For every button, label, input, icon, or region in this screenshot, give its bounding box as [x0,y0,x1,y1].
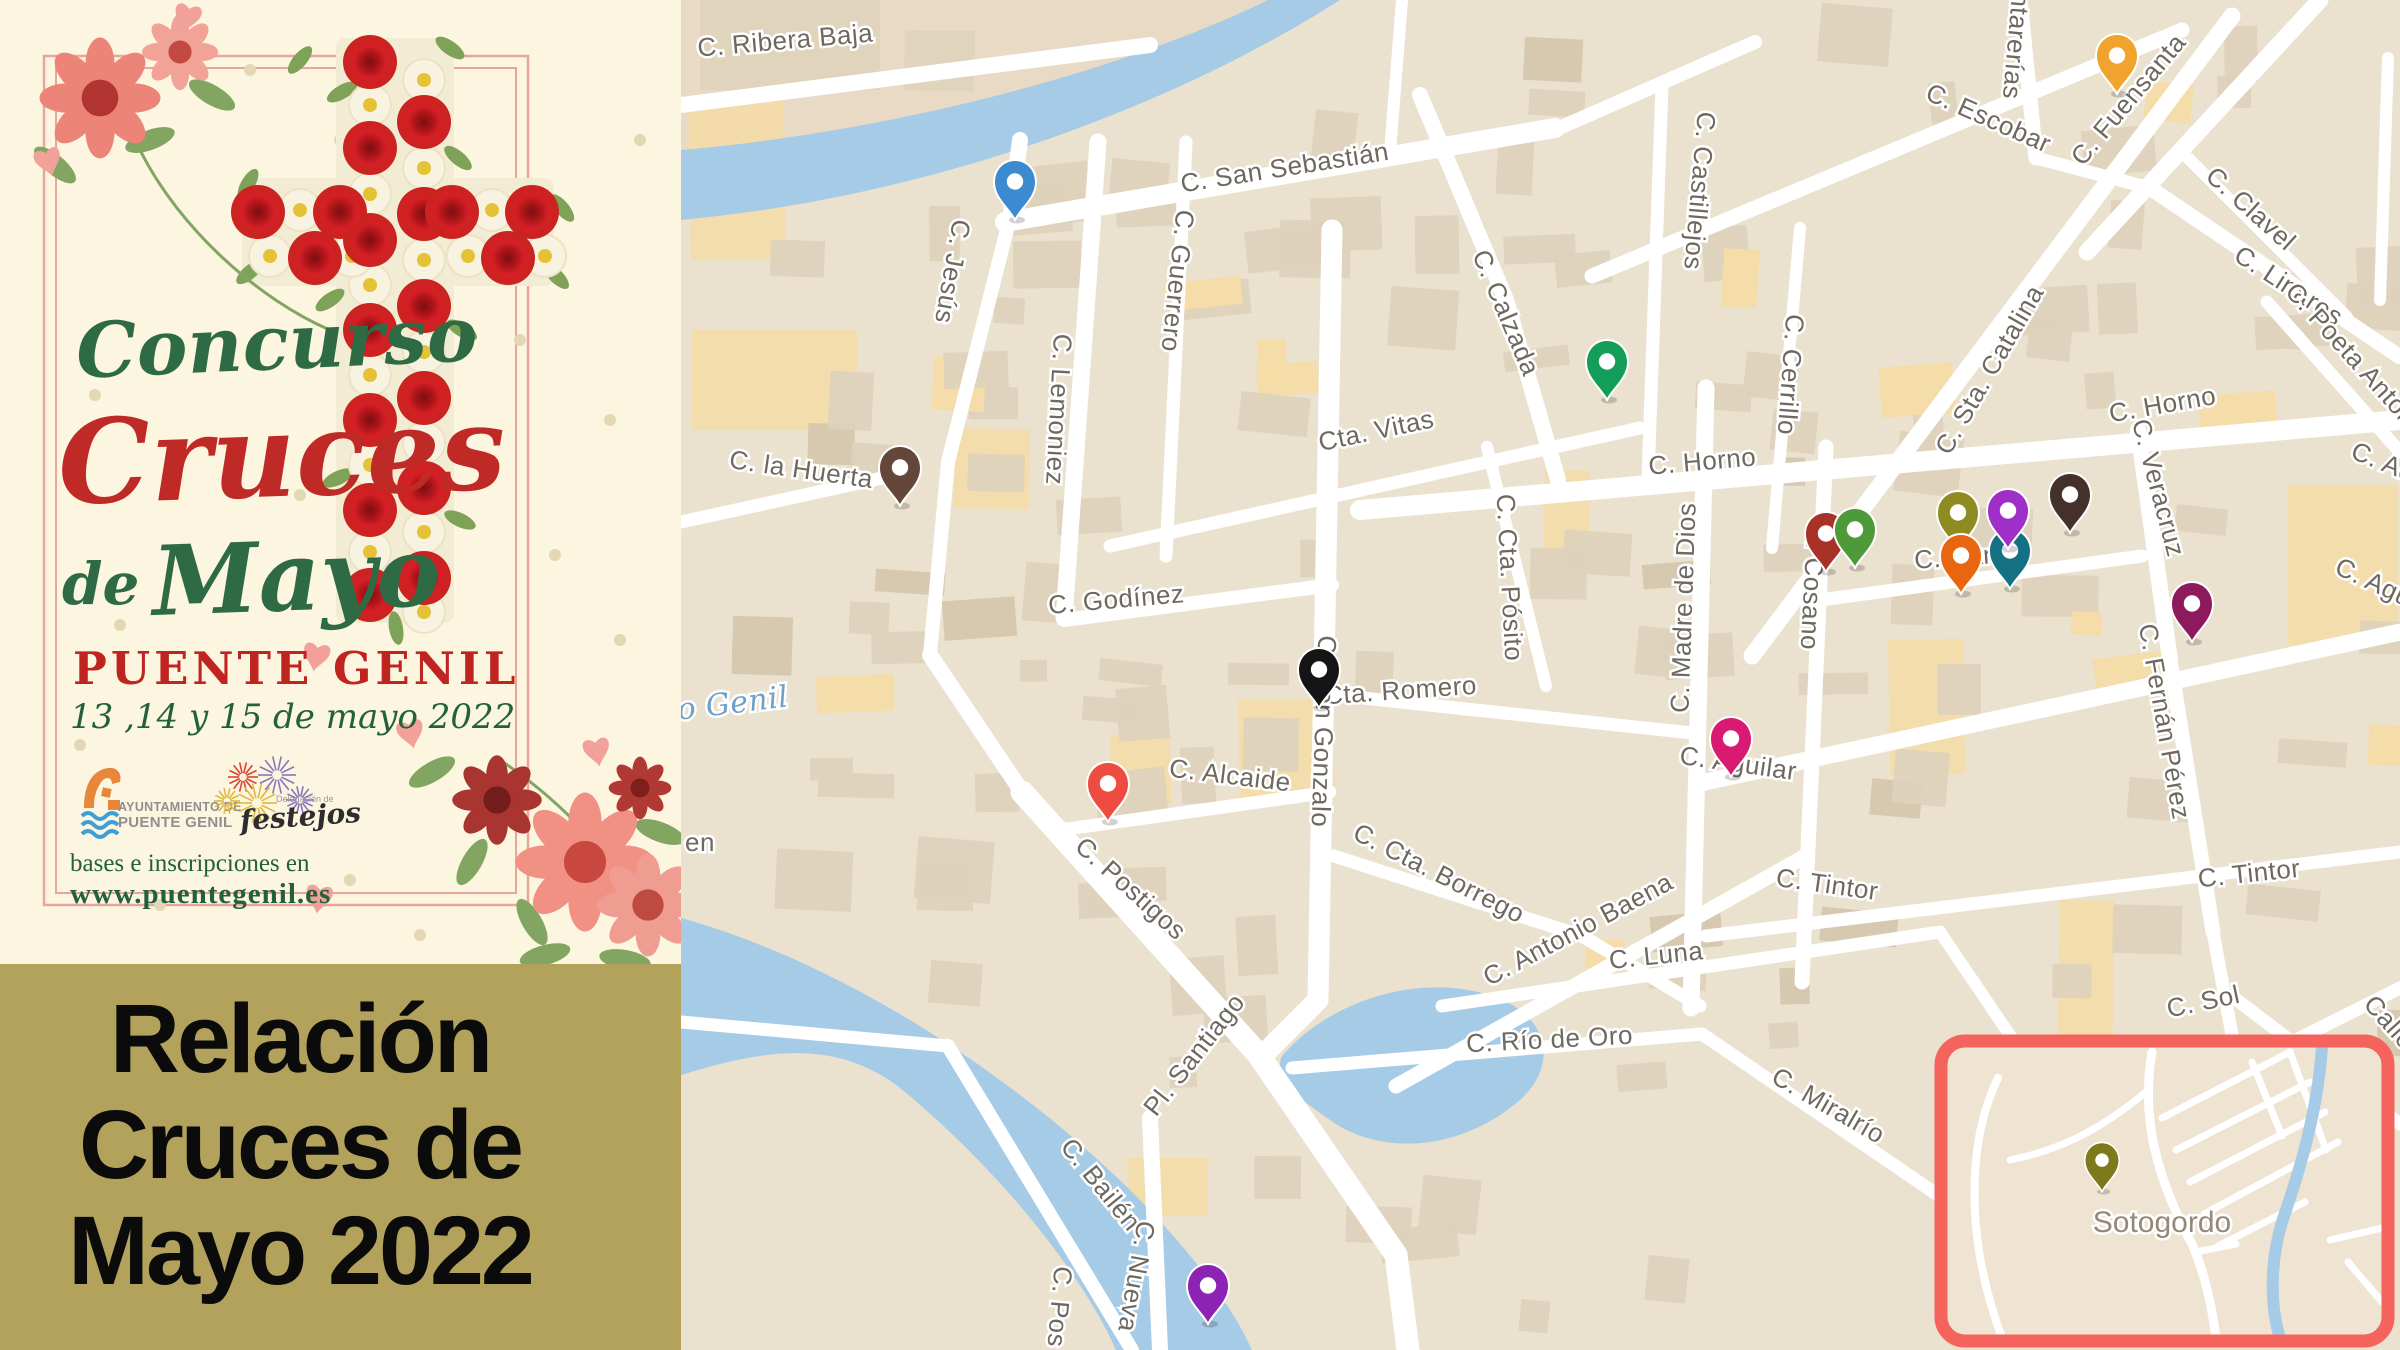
map-building [816,674,895,714]
map-building [2097,282,2138,335]
map-building [2367,724,2400,767]
map-building [2052,964,2091,998]
screenshot-stage: C. Ribera BajaC. San SebastiánC. JesúsC.… [0,0,2400,1350]
map-building [993,297,1025,325]
map-building [731,616,793,676]
map-building [967,453,1025,492]
map-building [1616,1061,1667,1092]
title-panel: Relación Cruces de Mayo 2022 [0,964,681,1350]
map-building [2112,904,2182,954]
map-building [1937,664,1980,715]
decor-flower [609,757,672,820]
poster-website-url[interactable]: www.puentegenil.es [70,878,331,911]
map-building [1530,548,1587,600]
map-building [1523,37,1583,83]
poster-title-line3-de: de [62,550,139,618]
map-building [1082,696,1139,724]
map-building [2070,611,2102,636]
map-building [917,862,974,911]
map-building [2021,575,2098,617]
map-building [1244,223,1323,274]
inset-place-label: Sotogordo [2093,1206,2231,1239]
map-building [1238,391,1311,437]
map-building [1228,663,1289,685]
poster-title-line3-mayo: Mayo [150,515,442,638]
map-building [775,849,854,912]
map-building [1257,339,1286,385]
street-label: en [685,827,715,857]
decor-flower [452,755,542,845]
poster-dates: 13 ,14 y 15 de mayo 2022 [70,697,515,737]
map-building [770,239,825,277]
fireworks-burst [258,756,296,793]
road [1318,230,1332,1000]
panel-title: Relación Cruces de Mayo 2022 [0,986,600,1304]
poster-title-line2: Cruces [56,380,508,532]
map-building [1768,1022,1799,1050]
map-building [1518,1299,1550,1334]
poster-title-line1: Concurso [74,289,479,395]
panel-title-line2: Cruces de [0,1092,600,1198]
map-building [828,371,875,432]
poster-info-line1: bases e inscripciones en [70,850,310,878]
poster-city: PUENTE GENIL [73,642,520,695]
map-building [810,758,853,781]
map-building [1721,248,1760,308]
map-building [1235,915,1278,976]
map-building [942,596,1017,641]
map-building [1892,749,1950,807]
map-building [1013,241,1082,289]
map-building [1817,3,1893,67]
map-building [1254,1156,1301,1199]
road [2380,58,2388,300]
map-building [2277,738,2347,768]
map-building [1418,1175,1482,1236]
map-building [2026,318,2074,362]
road [1396,1255,1408,1350]
map-building [849,601,890,635]
map-building [1387,286,1459,351]
map-building [928,960,983,1007]
fireworks-burst [214,788,240,813]
map-building [1020,660,1047,682]
panel-title-line3: Mayo 2022 [0,1198,600,1304]
decor-flower [40,38,161,159]
panel-title-line1: Relación [0,986,600,1092]
event-poster: Concurso Cruces de Mayo PUENTE GENIL 13 … [0,0,681,964]
map-building [1415,215,1460,274]
decor-flower [142,14,218,90]
map-building [1644,1255,1689,1304]
decor-heart [582,737,613,769]
sotogordo-inset: Sotogordo [1941,1041,2388,1341]
